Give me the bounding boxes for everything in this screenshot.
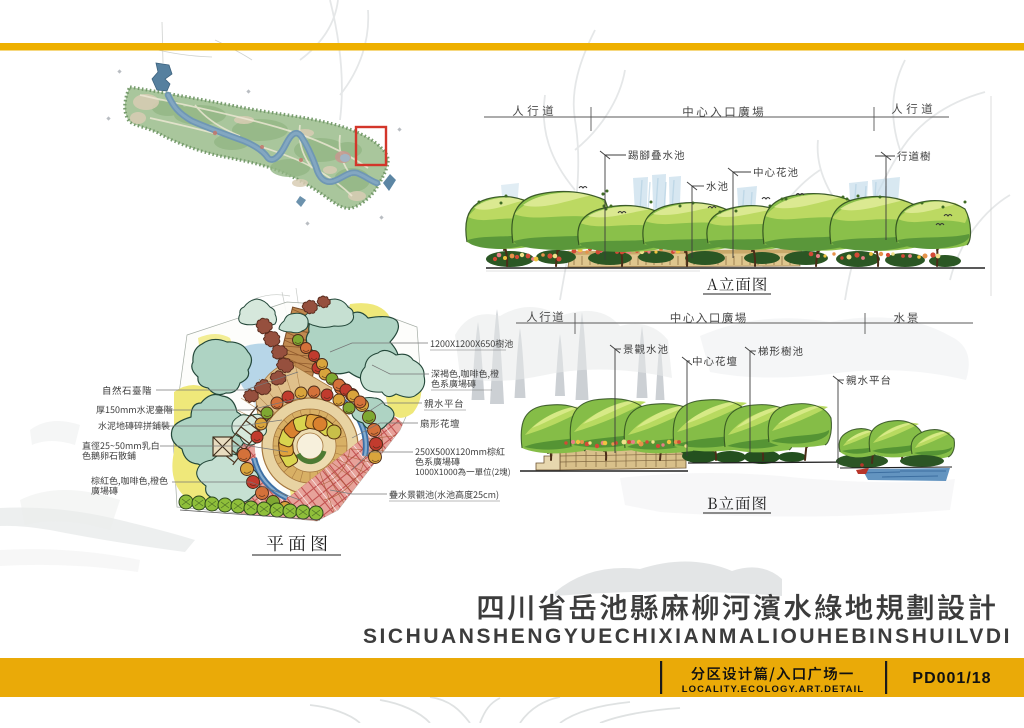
svg-text:PD001/18: PD001/18 [912, 670, 991, 687]
svg-text:LOCALITY.ECOLOGY.ART.DETAIL: LOCALITY.ECOLOGY.ART.DETAIL [682, 684, 865, 695]
svg-text:SICHUANSHENGYUECHIXIANMALIOUHE: SICHUANSHENGYUECHIXIANMALIOUHEBINSHUILVD… [363, 625, 1012, 648]
